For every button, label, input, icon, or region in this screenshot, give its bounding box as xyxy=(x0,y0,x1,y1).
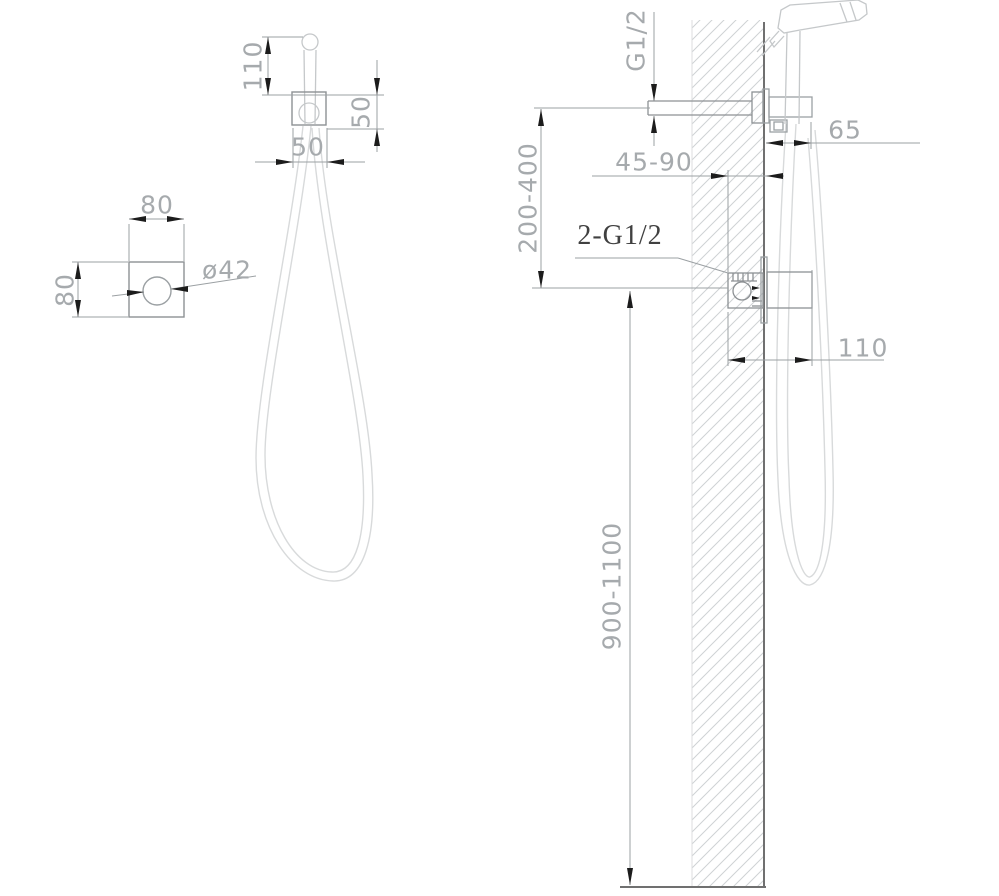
dim-holder-depth: 65 xyxy=(828,118,862,143)
dim-bracket-width: 50 xyxy=(291,135,325,160)
dim-embed-depth: 45-90 xyxy=(615,150,693,175)
dim-mount-height: 900-1100 xyxy=(600,522,625,650)
dim-valve-depth: 110 xyxy=(838,336,889,361)
dim-head-to-bracket: 110 xyxy=(241,41,266,92)
shower-holder-side xyxy=(763,89,812,132)
shower-hose-side xyxy=(777,124,834,585)
dimension-lines xyxy=(72,12,920,885)
dim-hole-diameter: ø42 xyxy=(202,258,252,283)
dim-bracket-height: 50 xyxy=(349,95,374,129)
shower-hose-front xyxy=(256,126,373,581)
dim-plate-width: 80 xyxy=(140,193,174,218)
label-connection-thread: 2-G1/2 xyxy=(577,222,662,250)
wall-bracket-front xyxy=(292,92,326,125)
dim-plate-height: 80 xyxy=(53,273,78,307)
dim-outlet-thread: G1/2 xyxy=(624,8,649,72)
dim-outlet-to-valve: 200-400 xyxy=(516,142,541,253)
technical-drawing-canvas: 110 50 50 80 80 ø42 G1/2 65 45-90 200-40… xyxy=(0,0,999,896)
hand-shower-front xyxy=(299,34,319,124)
